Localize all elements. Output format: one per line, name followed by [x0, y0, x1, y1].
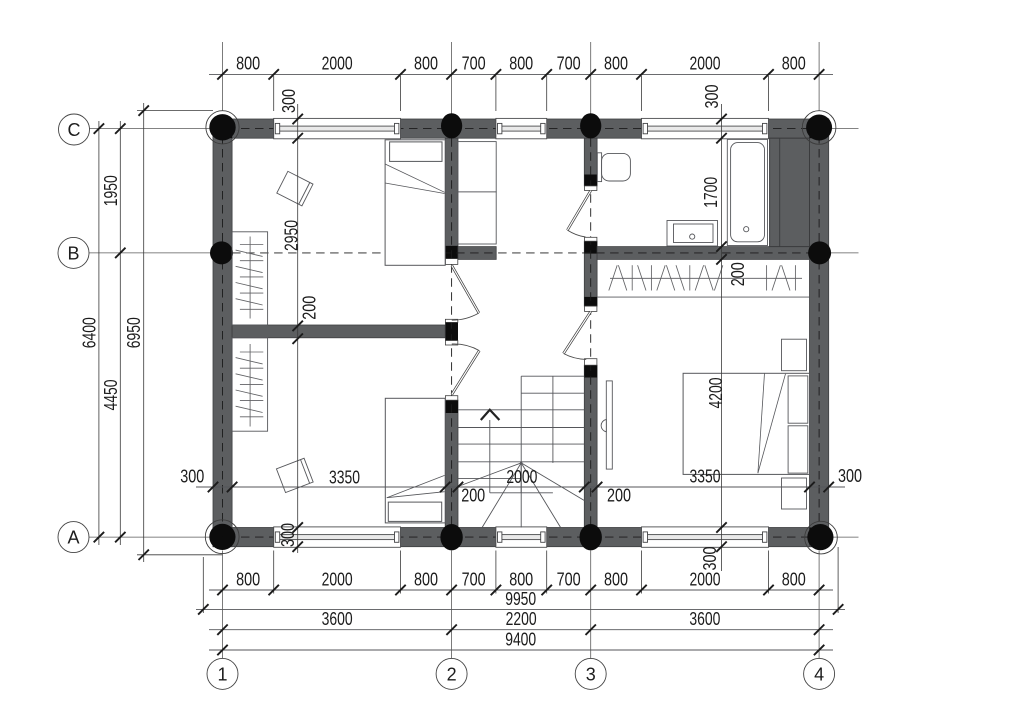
svg-text:1700: 1700 [700, 177, 721, 208]
svg-text:800: 800 [414, 568, 438, 589]
svg-text:3: 3 [586, 664, 596, 684]
svg-text:6950: 6950 [123, 317, 144, 348]
svg-text:200: 200 [461, 484, 485, 505]
svg-text:2: 2 [447, 664, 457, 684]
svg-text:800: 800 [236, 568, 260, 589]
svg-text:300: 300 [180, 465, 204, 486]
svg-text:3600: 3600 [689, 608, 720, 629]
svg-text:700: 700 [557, 568, 581, 589]
svg-text:200: 200 [299, 296, 320, 320]
svg-text:300: 300 [699, 547, 720, 571]
svg-text:700: 700 [557, 53, 581, 74]
svg-text:B: B [67, 243, 79, 263]
svg-text:300: 300 [838, 465, 862, 486]
svg-text:9950: 9950 [505, 588, 536, 609]
svg-text:C: C [68, 120, 81, 140]
svg-text:2950: 2950 [281, 220, 302, 251]
svg-text:800: 800 [604, 53, 628, 74]
svg-text:A: A [67, 528, 79, 548]
svg-text:700: 700 [462, 53, 486, 74]
svg-text:3350: 3350 [690, 465, 721, 486]
svg-text:6400: 6400 [78, 317, 99, 348]
svg-text:4200: 4200 [705, 378, 726, 409]
svg-text:9400: 9400 [505, 629, 536, 650]
svg-text:800: 800 [509, 568, 533, 589]
svg-text:300: 300 [277, 523, 298, 547]
svg-text:2000: 2000 [690, 53, 721, 74]
svg-text:4: 4 [814, 664, 824, 684]
svg-text:800: 800 [782, 53, 806, 74]
svg-text:2000: 2000 [322, 568, 353, 589]
svg-text:2200: 2200 [506, 608, 537, 629]
svg-text:800: 800 [236, 53, 260, 74]
svg-text:200: 200 [727, 262, 748, 286]
svg-text:800: 800 [414, 53, 438, 74]
svg-text:700: 700 [462, 568, 486, 589]
svg-text:800: 800 [604, 568, 628, 589]
svg-text:4450: 4450 [100, 380, 121, 411]
svg-text:3350: 3350 [329, 466, 360, 487]
svg-text:200: 200 [607, 484, 631, 505]
svg-text:300: 300 [701, 85, 722, 109]
svg-text:800: 800 [782, 568, 806, 589]
svg-text:2000: 2000 [322, 53, 353, 74]
svg-text:2000: 2000 [506, 466, 537, 487]
svg-text:300: 300 [278, 89, 299, 113]
svg-text:1950: 1950 [100, 175, 121, 206]
svg-text:1: 1 [217, 664, 227, 684]
svg-text:800: 800 [509, 53, 533, 74]
svg-text:3600: 3600 [322, 608, 353, 629]
